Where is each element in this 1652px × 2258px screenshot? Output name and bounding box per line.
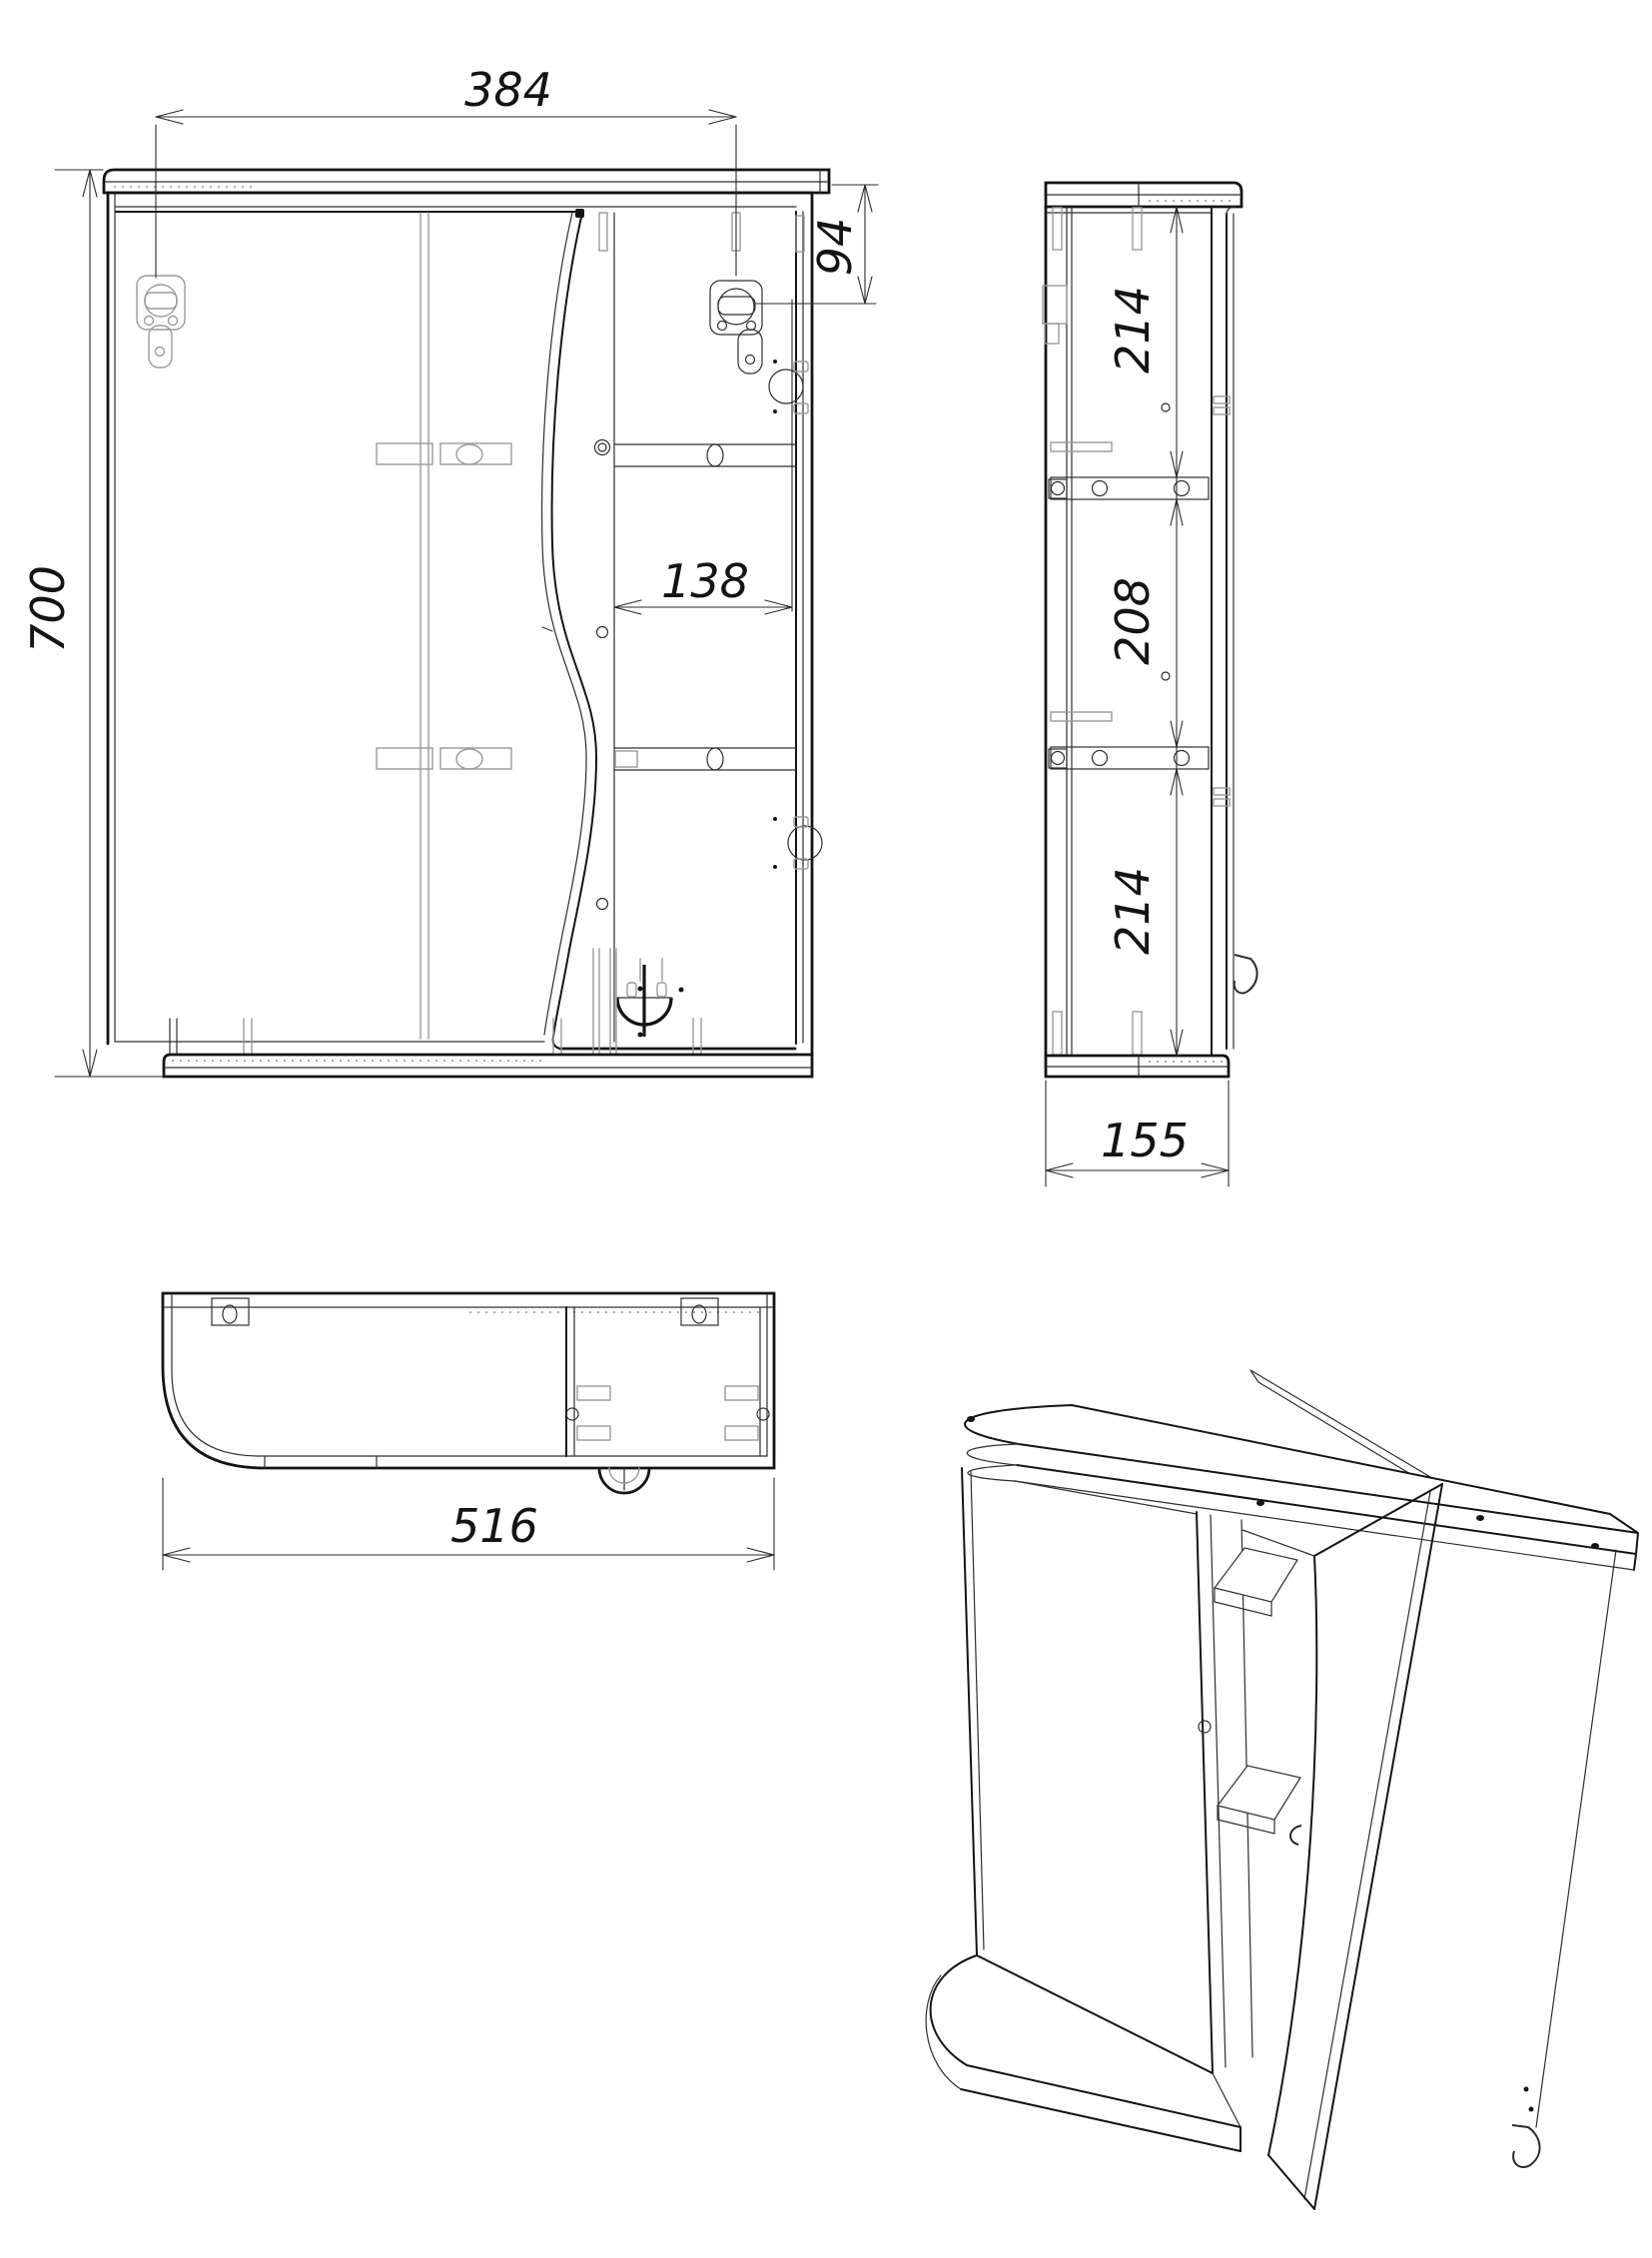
front-hidden-verticals (244, 213, 701, 1055)
glass-shelf-holder-lower (788, 826, 822, 860)
iso-screw-dot (1476, 1515, 1484, 1521)
dim-upper-section: 214 (1106, 286, 1160, 374)
dimension-516: 516 (163, 1478, 774, 1570)
iso-shelf-2 (1218, 1766, 1300, 1834)
iso-base-front (931, 1955, 1240, 2127)
iso-door-handle (1290, 1826, 1301, 1845)
front-shelf-1 (614, 444, 796, 466)
dim-lower-section: 214 (1106, 867, 1160, 955)
shelf-pin-hole-1 (597, 627, 608, 638)
glass-shelf-holder-upper (769, 370, 803, 403)
dim-opening-width: 138 (661, 554, 749, 608)
bottom-view: 516 (163, 1293, 774, 1570)
door-wave-edge-inner (542, 213, 586, 1035)
dim-overall-height: 700 (21, 565, 75, 653)
door-wave-edge-outer (552, 213, 596, 1049)
dimension-138: 138 (614, 300, 792, 614)
hidden-shelf-2 (377, 748, 511, 769)
iso-shelf-pin (1199, 1721, 1211, 1733)
bottom-cleats (577, 1386, 758, 1440)
iso-screw-dot (1591, 1543, 1599, 1549)
dim-overall-width: 516 (450, 1499, 538, 1553)
bottom-outline (163, 1293, 774, 1468)
dimension-155: 155 (1046, 1081, 1229, 1186)
bottom-hanger-left (212, 1298, 249, 1325)
keyhole-hanger-right (710, 281, 762, 374)
isometric-view (926, 1370, 1638, 2209)
dimension-94: 94 (808, 185, 878, 304)
dimension-700: 700 (21, 170, 163, 1077)
side-shelf-rail-2 (1049, 747, 1209, 769)
front-view: 384 94 700 138 (21, 63, 878, 1077)
keyhole-hanger-left (137, 276, 185, 368)
side-view: 214 208 214 155 (1043, 183, 1257, 1186)
side-door-hook (1235, 955, 1257, 993)
cabinet-drawing: 384 94 700 138 (0, 0, 1652, 2258)
side-back-panel (1067, 207, 1072, 1056)
shelf-pin-hole-2 (597, 899, 608, 910)
side-hidden-shelf-2 (1051, 712, 1112, 721)
iso-mirror-left-edge (962, 1468, 977, 1955)
side-shelf-rail-1 (1049, 477, 1209, 499)
dimension-chain-side: 214 208 214 (1106, 207, 1183, 1056)
iso-crown-top (965, 1405, 1638, 1533)
iso-hook (1512, 2125, 1540, 2167)
dim-depth: 155 (1101, 1114, 1189, 1167)
front-top-cleats (599, 213, 804, 252)
iso-screw-dot (967, 1416, 975, 1422)
iso-screw-dot (1256, 1500, 1264, 1506)
side-hidden-shelf-1 (1051, 442, 1112, 451)
confirmat-screw-1 (595, 440, 610, 455)
drawing-sheet: 384 94 700 138 (0, 0, 1652, 2258)
bottom-door-knob (599, 1468, 649, 1493)
front-base-panel (164, 1055, 812, 1077)
hidden-shelf-1 (377, 443, 511, 464)
iso-right-rear-edge (1536, 1550, 1616, 2127)
door-knob-front (617, 959, 671, 1037)
dim-hanger-spacing: 384 (464, 63, 552, 117)
front-shelf-2 (614, 748, 796, 770)
iso-base-top-edge (977, 1955, 1213, 2073)
dim-middle-section: 208 (1106, 577, 1160, 665)
iso-shelf-1 (1215, 1548, 1297, 1616)
dim-top-offset: 94 (808, 218, 862, 277)
iso-divider-edge (1197, 1512, 1213, 2073)
